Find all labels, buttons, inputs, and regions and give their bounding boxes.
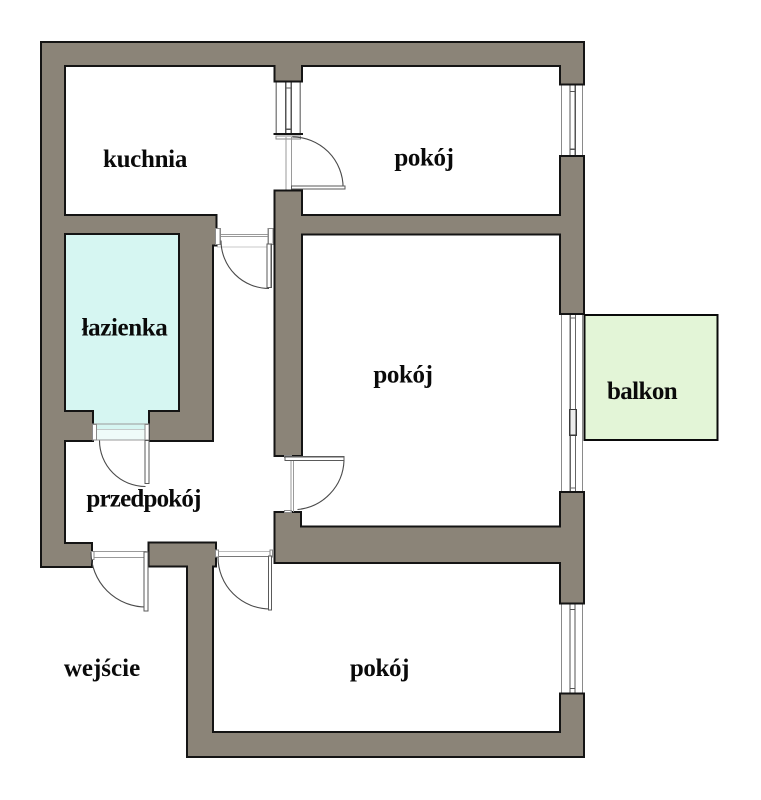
svg-text:pokój: pokój [394, 145, 453, 172]
svg-text:pokój: pokój [373, 362, 432, 389]
svg-text:przedpokój: przedpokój [86, 486, 200, 513]
svg-text:pokój: pokój [350, 655, 409, 682]
svg-text:balkon: balkon [607, 378, 678, 405]
svg-text:kuchnia: kuchnia [103, 146, 188, 173]
svg-text:łazienka: łazienka [82, 315, 169, 342]
svg-text:wejście: wejście [64, 655, 140, 682]
